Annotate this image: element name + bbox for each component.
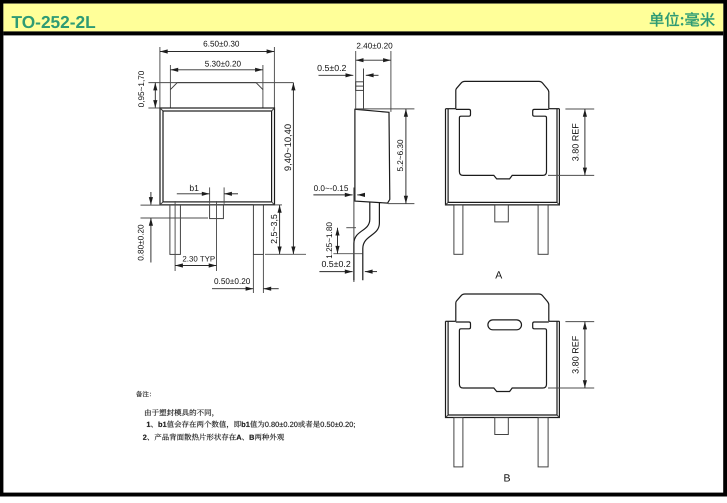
svg-text:0.50±0.20: 0.50±0.20 — [214, 277, 251, 286]
svg-text:TO-252-2L: TO-252-2L — [12, 12, 97, 32]
svg-text:2,5~3,5: 2,5~3,5 — [269, 214, 279, 244]
svg-text:2.40±0.20: 2.40±0.20 — [356, 42, 393, 51]
svg-text:9,40~10,40: 9,40~10,40 — [282, 124, 293, 171]
svg-text:2.30 TYP: 2.30 TYP — [182, 255, 215, 264]
svg-text:0.0~-0.15: 0.0~-0.15 — [314, 184, 349, 193]
svg-text:0.5±0.2: 0.5±0.2 — [317, 63, 346, 73]
svg-text:B: B — [503, 472, 510, 484]
svg-text:b1: b1 — [189, 183, 199, 193]
svg-text:A: A — [495, 269, 502, 281]
svg-text:0.80±0.20: 0.80±0.20 — [137, 224, 146, 261]
svg-text:0.5±0.2: 0.5±0.2 — [321, 259, 350, 269]
svg-text:5.30±0.20: 5.30±0.20 — [205, 60, 242, 69]
svg-text:1.25~1.80: 1.25~1.80 — [325, 222, 334, 259]
svg-text:6.50±0.30: 6.50±0.30 — [203, 40, 240, 49]
svg-text:3.80 REF: 3.80 REF — [571, 123, 581, 162]
svg-text:3.80 REF: 3.80 REF — [571, 335, 581, 374]
svg-text:5.2~6.30: 5.2~6.30 — [396, 139, 405, 172]
svg-text:0,95~1,70: 0,95~1,70 — [137, 70, 146, 107]
